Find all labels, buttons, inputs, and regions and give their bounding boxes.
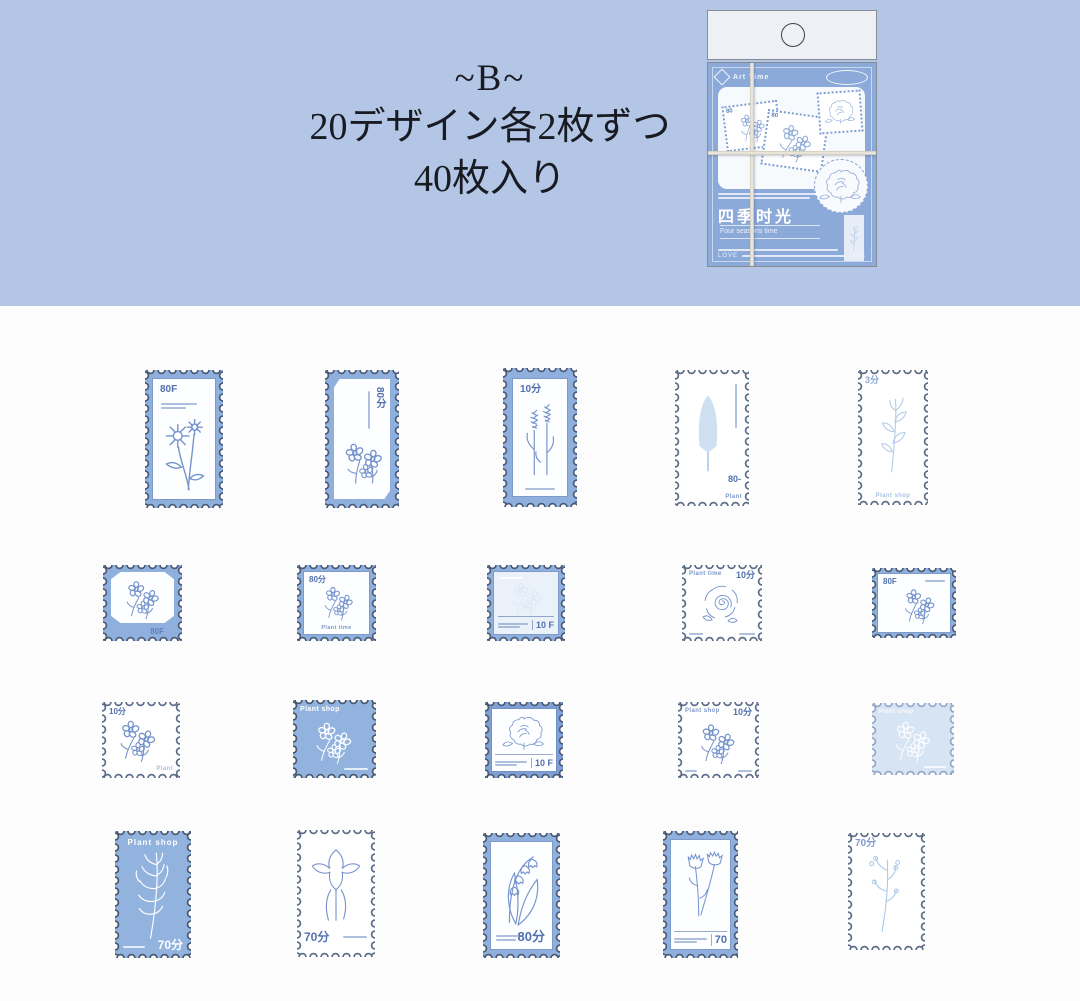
- stamp-panel: 80分 Plant time: [304, 572, 369, 634]
- stamp-bottom-strip: 10 F: [495, 754, 553, 769]
- stamp-microtext: [525, 486, 555, 492]
- stamp-sweet-pea: 80分: [325, 370, 399, 508]
- white-flowers-icon: [884, 713, 940, 765]
- denomination: 70: [711, 934, 727, 946]
- stamp-caption: Plant shop: [685, 708, 720, 714]
- package-microtext: [718, 191, 826, 201]
- stamp-caption: Plant: [156, 766, 173, 772]
- stamp-iris: 70分: [297, 830, 375, 957]
- stamp-lavender: 10分: [503, 368, 577, 507]
- stamp-anemone: 80F: [103, 565, 182, 641]
- stamp-microtext: [123, 944, 145, 950]
- poppy-flower-icon: [690, 716, 744, 766]
- lilac-flower-icon: [683, 380, 733, 486]
- stamp-microtext: [924, 764, 946, 770]
- pale-flowers-icon: [502, 576, 550, 618]
- sweet-pea-flower-icon: [330, 422, 397, 498]
- stamp-caption: Plant: [725, 494, 742, 500]
- stamp-white-flowers: Plant shop: [293, 700, 376, 778]
- fern-flower-icon: [123, 849, 181, 941]
- package-title: 四季时光: [718, 203, 794, 227]
- denomination: 10 F: [532, 620, 554, 630]
- anemone-flower-icon: [113, 573, 171, 621]
- product-photo: ~B~ 20デザイン各2枚ずつ 40枚入り Art Time 80 80: [0, 0, 1080, 1001]
- denomination: 70分: [304, 931, 329, 943]
- stamp-microtext: [161, 401, 197, 411]
- denomination: 80-: [728, 475, 741, 484]
- stamp-white-flowers-pale: Plant shop: [872, 703, 954, 775]
- denomination: 80分: [518, 930, 545, 943]
- carnation-flower-icon: [673, 844, 729, 922]
- package-hang-tab: [707, 10, 877, 60]
- stamp-panel: 80分: [334, 379, 390, 499]
- stamp-microtext: [495, 760, 527, 767]
- round-sticker: [814, 159, 868, 213]
- stamp-panel: 10分: [513, 379, 567, 496]
- stamp-panel: 10 F: [492, 709, 556, 771]
- package-top-row: Art Time: [716, 70, 868, 84]
- stamp-peony: 10 F: [485, 702, 563, 778]
- iris-flower-icon: [305, 838, 367, 930]
- stamp-microtext: [739, 631, 755, 637]
- package-front: Art Time 80 80: [707, 62, 877, 267]
- stamp-lilac: 80- Plant: [675, 370, 749, 506]
- footer-left-text: LOVE: [718, 253, 738, 259]
- stamp-bottom-strip: 10 F: [498, 616, 554, 631]
- lily-of-the-valley-flower-icon: [495, 848, 549, 930]
- packaging-string-horizontal: [708, 151, 876, 155]
- denomination: 10 F: [531, 758, 553, 768]
- peony-flower-icon: [500, 711, 548, 755]
- daisy-flower-icon: [159, 411, 209, 497]
- stamp-panel: 80分: [491, 842, 552, 949]
- stamp-poppy: Plant shop 10分: [678, 702, 759, 778]
- stamp-daisy: 80F: [145, 370, 223, 508]
- denomination: 70分: [158, 939, 183, 951]
- branch-flower-icon: [868, 386, 918, 484]
- stamp-caption: Plant shop: [300, 706, 340, 713]
- stamp-branch: 3分 Plant shop: [858, 370, 928, 505]
- stamp-panel: 80F: [878, 574, 950, 632]
- daisy-cluster-flower-icon: [896, 582, 942, 626]
- stamp-bottom-strip: 70: [674, 931, 727, 946]
- stamp-bouquet: 80分 Plant time: [297, 565, 376, 641]
- bouquet-flower-icon: [822, 95, 858, 129]
- stamp-caption: Plant time: [304, 626, 369, 632]
- stamp-microtext: [368, 389, 370, 429]
- denomination: 3分: [865, 376, 879, 385]
- diamond-logo-icon: [714, 69, 731, 86]
- stamp-microtext: [674, 937, 707, 944]
- peony-bouquet-flower-icon: [110, 712, 164, 764]
- stamp-fern: Plant shop 70分: [115, 831, 191, 958]
- denomination: 80分: [374, 387, 384, 408]
- stamp-panel: 80F: [153, 379, 215, 499]
- stamp-microtext: [689, 631, 703, 637]
- product-package: Art Time 80 80: [707, 10, 877, 267]
- rose-flower-icon: [696, 579, 748, 629]
- stamp-panel: [111, 572, 174, 623]
- denomination: 80F: [883, 578, 897, 586]
- stamp-microtext: [735, 382, 737, 430]
- stamp-microtext: [685, 768, 697, 774]
- stamp-microtext: [344, 766, 368, 772]
- packaging-string-vertical: [750, 63, 754, 266]
- series-oval-badge-icon: [826, 70, 868, 85]
- flower-spray-icon: [860, 845, 912, 941]
- stamp-flower-spray: 70分: [848, 833, 925, 950]
- banner: ~B~ 20デザイン各2枚ずつ 40枚入り: [0, 0, 1080, 306]
- stamp-caption: Plant shop: [858, 493, 928, 499]
- denomination: 80F: [160, 385, 177, 395]
- stamp-caption: Plant shop: [115, 839, 191, 847]
- stamp-lily-of-the-valley: 80分: [483, 833, 560, 958]
- lavender-flower-icon: [517, 399, 563, 485]
- stamp-panel: 10 F: [494, 572, 558, 634]
- stamp-pale-flowers: 10 F: [487, 565, 565, 641]
- peony-flower-icon: [819, 164, 863, 208]
- denomination: 80F: [150, 628, 164, 636]
- stamp-caption: Plant time: [689, 571, 722, 577]
- stamp-microtext: [498, 622, 528, 629]
- package-subtitle: Four seasons time: [720, 225, 820, 239]
- stamp-peony-bouquet: 10分 Plant: [102, 702, 180, 778]
- stamp-daisy-cluster: 80F: [872, 568, 956, 638]
- white-flowers-icon: [305, 714, 361, 766]
- bouquet-flower-icon: [316, 580, 360, 622]
- footer-right-text: LIFE: [849, 253, 866, 259]
- package-footer: LOVE LIFE: [718, 247, 866, 259]
- stamp-panel: 70: [671, 840, 730, 949]
- denomination: 10分: [520, 385, 541, 395]
- stamp-carnation: 70: [663, 831, 738, 958]
- bouquet-flower-icon: [766, 115, 824, 168]
- stamp-rose: Plant time 10分: [682, 565, 762, 641]
- hang-hole-icon: [781, 23, 805, 47]
- stamp-microtext: [343, 934, 367, 940]
- stamp-microtext: [738, 768, 752, 774]
- mini-stamp: [817, 90, 864, 135]
